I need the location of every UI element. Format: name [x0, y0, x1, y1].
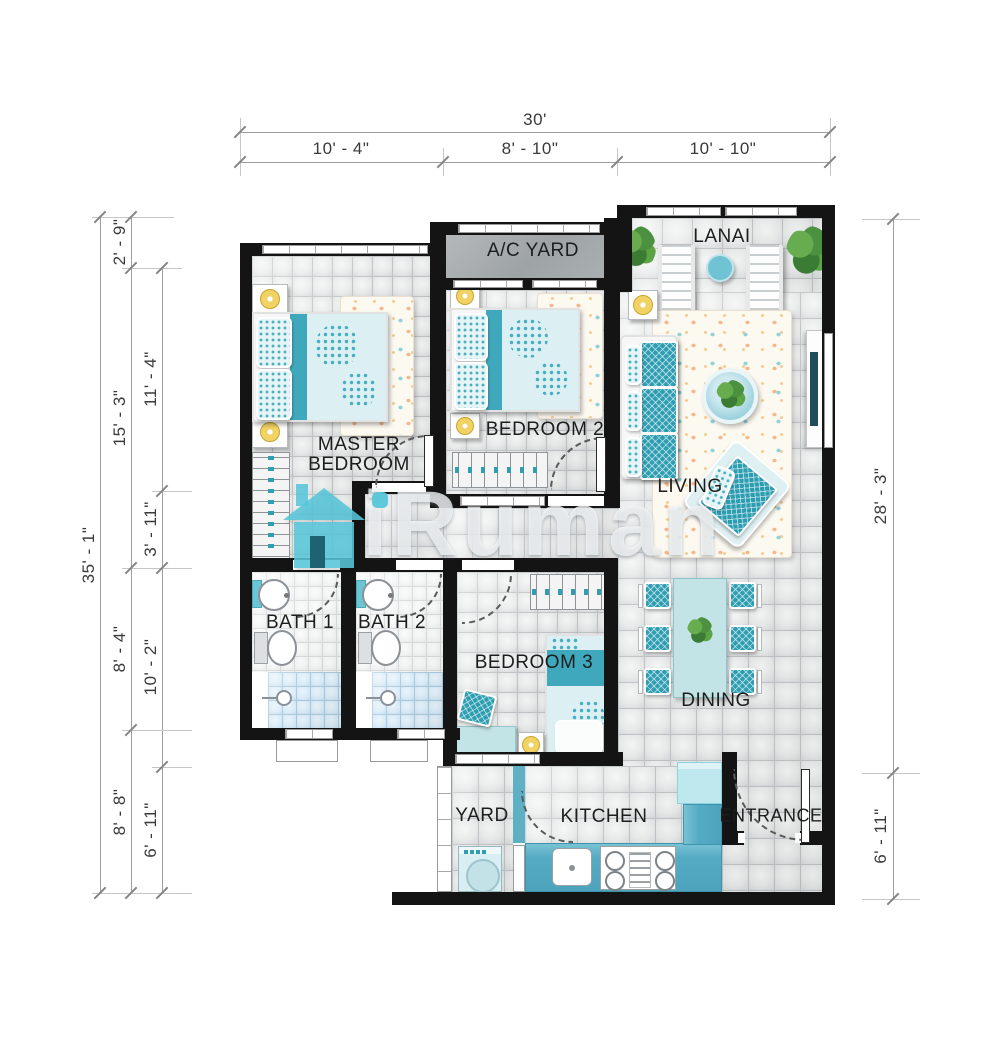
room-label-bedroom2: BEDROOM 2 [486, 419, 605, 441]
room-label-living: LIVING [657, 476, 722, 498]
room-label-ac-yard: A/C YARD [487, 240, 579, 262]
room-label-bath1: BATH 1 [266, 612, 334, 634]
house-icon [283, 484, 365, 568]
room-label-kitchen: KITCHEN [561, 806, 648, 828]
room-label-master-bedroom: MASTER BEDROOM [304, 435, 414, 475]
room-label-bedroom3: BEDROOM 3 [475, 652, 594, 674]
watermark: iRuman [0, 0, 991, 1049]
room-label-bath2: BATH 2 [358, 612, 426, 634]
floor-plan-canvas: iRuman A/C YARD LANAI MASTER BEDROOM BED… [0, 0, 991, 1049]
watermark-i-dot [372, 492, 388, 508]
room-label-dining: DINING [681, 690, 751, 712]
room-label-entrance: ENTRANCE [719, 806, 822, 827]
room-label-lanai: LANAI [693, 226, 750, 248]
room-label-yard: YARD [455, 805, 508, 827]
